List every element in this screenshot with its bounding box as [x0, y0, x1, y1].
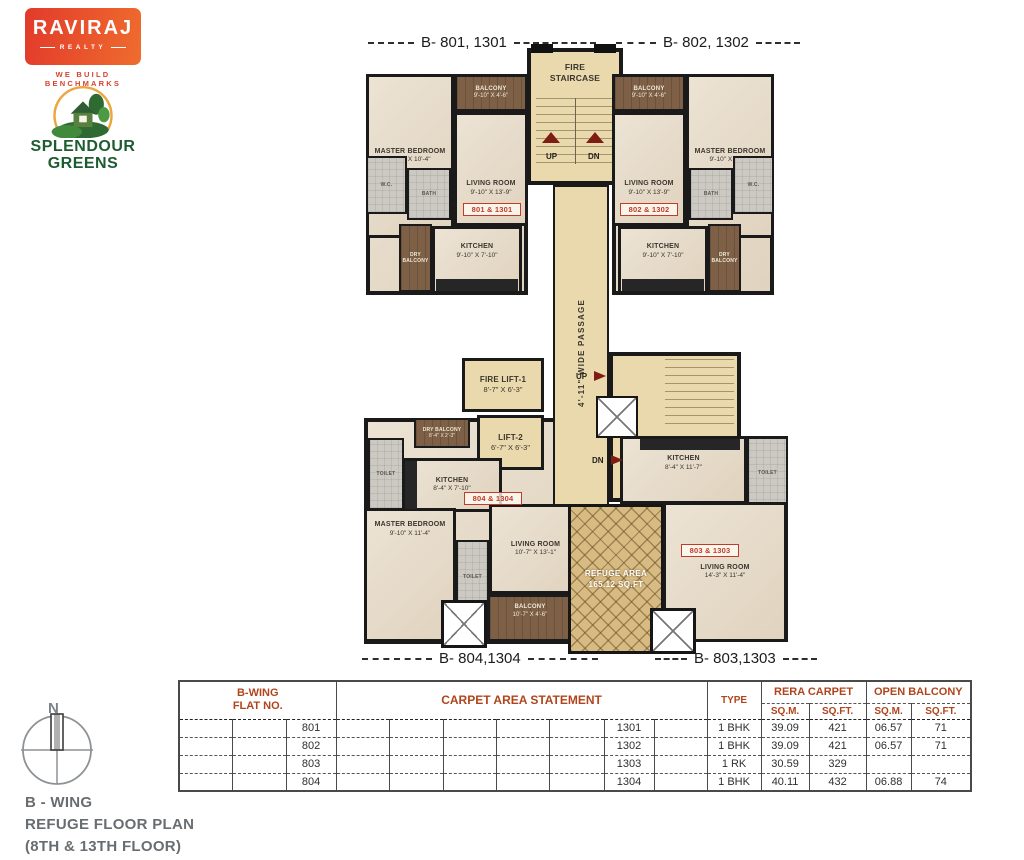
callout-dash — [655, 658, 687, 660]
callout-label: B- 804,1304 — [439, 650, 521, 667]
callout-803-1303: B- 803,1303 — [655, 650, 817, 667]
compass-icon — [18, 712, 96, 786]
callout-dash — [528, 658, 598, 660]
raviraj-logo-subtitle: REALTY — [25, 44, 141, 51]
callout-label: B- 801, 1301 — [421, 34, 507, 51]
callout-dash — [368, 42, 414, 44]
bath-801: BATH — [407, 168, 451, 220]
passage: 4'-11" WIDE PASSAGE — [553, 185, 609, 521]
divider — [40, 47, 55, 48]
toilet-804: TOILET — [368, 438, 404, 510]
table-row-801: 801 1301 1 BHK 39.09421 06.5771 — [179, 719, 971, 737]
unit-tag-801: 801 & 1301 — [463, 203, 521, 216]
callout-dash — [362, 658, 432, 660]
raviraj-logo: RAVIRAJ REALTY — [25, 8, 141, 65]
lift-shaft — [596, 396, 638, 438]
plan-title-wing: B - WING — [25, 792, 194, 814]
fire-lift-1: FIRE LIFT-1 8'-7" X 6'-3" — [462, 358, 544, 412]
splendour-greens-icon — [45, 80, 121, 138]
balcony-802: BALCONY 9'-10" X 4'-6" — [612, 74, 686, 112]
staircase-divider — [575, 98, 576, 164]
passage-label: 4'-11" WIDE PASSAGE — [577, 299, 586, 407]
table-row-803: 803 1303 1 RK 30.59329 — [179, 755, 971, 773]
wc-802: W.C. — [733, 156, 774, 214]
arrow-right-icon — [594, 371, 606, 381]
callout-label: B- 803,1303 — [694, 650, 776, 667]
dn-label: DN — [592, 456, 604, 465]
divider — [111, 47, 126, 48]
arrow-right-icon — [611, 455, 623, 465]
table-row-804: 804 1304 1 BHK 40.11432 06.8874 — [179, 773, 971, 791]
refuge-area-value: 165.12 SQ.FT — [588, 579, 643, 590]
fire-staircase: FIRE STAIRCASE — [527, 48, 623, 185]
wc-801: W.C. — [366, 156, 407, 214]
type-header: TYPE — [707, 681, 761, 719]
toilet-803: TOILET — [747, 437, 788, 509]
balcony-801: BALCONY 9'-10" X 4'-6" — [454, 74, 528, 112]
unit-tag-802: 802 & 1302 — [620, 203, 678, 216]
dry-balcony-801: DRY BALCONY — [399, 224, 432, 292]
kitchen-counter — [405, 461, 417, 509]
dn-label: DN — [588, 152, 600, 161]
plan-title: B - WING REFUGE FLOOR PLAN (8TH & 13TH F… — [25, 792, 194, 857]
unit-tag-803: 803 & 1303 — [681, 544, 739, 557]
open-sqm-header: SQ.M. — [866, 703, 911, 719]
rera-sqft-header: SQ.FT. — [809, 703, 866, 719]
up-label: UP — [576, 372, 587, 381]
callout-dash — [783, 658, 817, 660]
flat-no-header: B-WINGFLAT NO. — [179, 681, 336, 719]
kitchen-counter — [436, 279, 518, 291]
balcony-804: BALCONY 10'-7" X 4'-6" — [487, 594, 573, 642]
kitchen-counter — [622, 279, 704, 291]
callout-802-1302: B- 802, 1302 — [616, 34, 800, 51]
wall-pier — [594, 44, 616, 53]
refuge-floor-plan-page: RAVIRAJ REALTY WE BUILD BENCHMARKS SPLEN… — [0, 0, 1024, 860]
callout-801-1301: B- 801, 1301 — [368, 34, 596, 51]
up-label: UP — [546, 152, 557, 161]
plan-title-floors: (8TH & 13TH FLOOR) — [25, 836, 194, 858]
open-duct — [441, 600, 487, 648]
callout-label: B- 802, 1302 — [663, 34, 749, 51]
dry-balcony-802: DRY BALCONY — [708, 224, 741, 292]
stair-arrow-up-icon — [542, 132, 560, 143]
callout-dash — [756, 42, 800, 44]
unit-tag-804: 804 & 1304 — [464, 492, 522, 505]
table-row-802: 802 1302 1 BHK 39.09421 06.5771 — [179, 737, 971, 755]
refuge-label: REFUGE AREA — [585, 568, 647, 579]
project-name-line2: GREENS — [25, 155, 141, 173]
callout-dash — [616, 42, 656, 44]
open-sqft-header: SQ.FT. — [911, 703, 971, 719]
open-duct — [650, 608, 696, 654]
carpet-area-header: CARPET AREA STATEMENT — [336, 681, 707, 719]
callout-804-1304: B- 804,1304 — [362, 650, 598, 667]
raviraj-logo-title: RAVIRAJ — [25, 18, 141, 38]
rera-sqm-header: SQ.M. — [761, 703, 809, 719]
open-balcony-header: OPEN BALCONY — [866, 681, 971, 703]
carpet-area-table: B-WINGFLAT NO. CARPET AREA STATEMENT TYP… — [178, 680, 972, 792]
dry-balcony-804: DRY BALCONY 8'-4" X 2'-3" — [414, 418, 470, 448]
kitchen-counter — [640, 439, 740, 450]
rera-carpet-header: RERA CARPET — [761, 681, 866, 703]
stair-arrow-up-icon — [586, 132, 604, 143]
plan-title-name: REFUGE FLOOR PLAN — [25, 814, 194, 836]
callout-dash — [514, 42, 596, 44]
bath-802: BATH — [689, 168, 733, 220]
project-name-line1: SPLENDOUR — [25, 138, 141, 156]
